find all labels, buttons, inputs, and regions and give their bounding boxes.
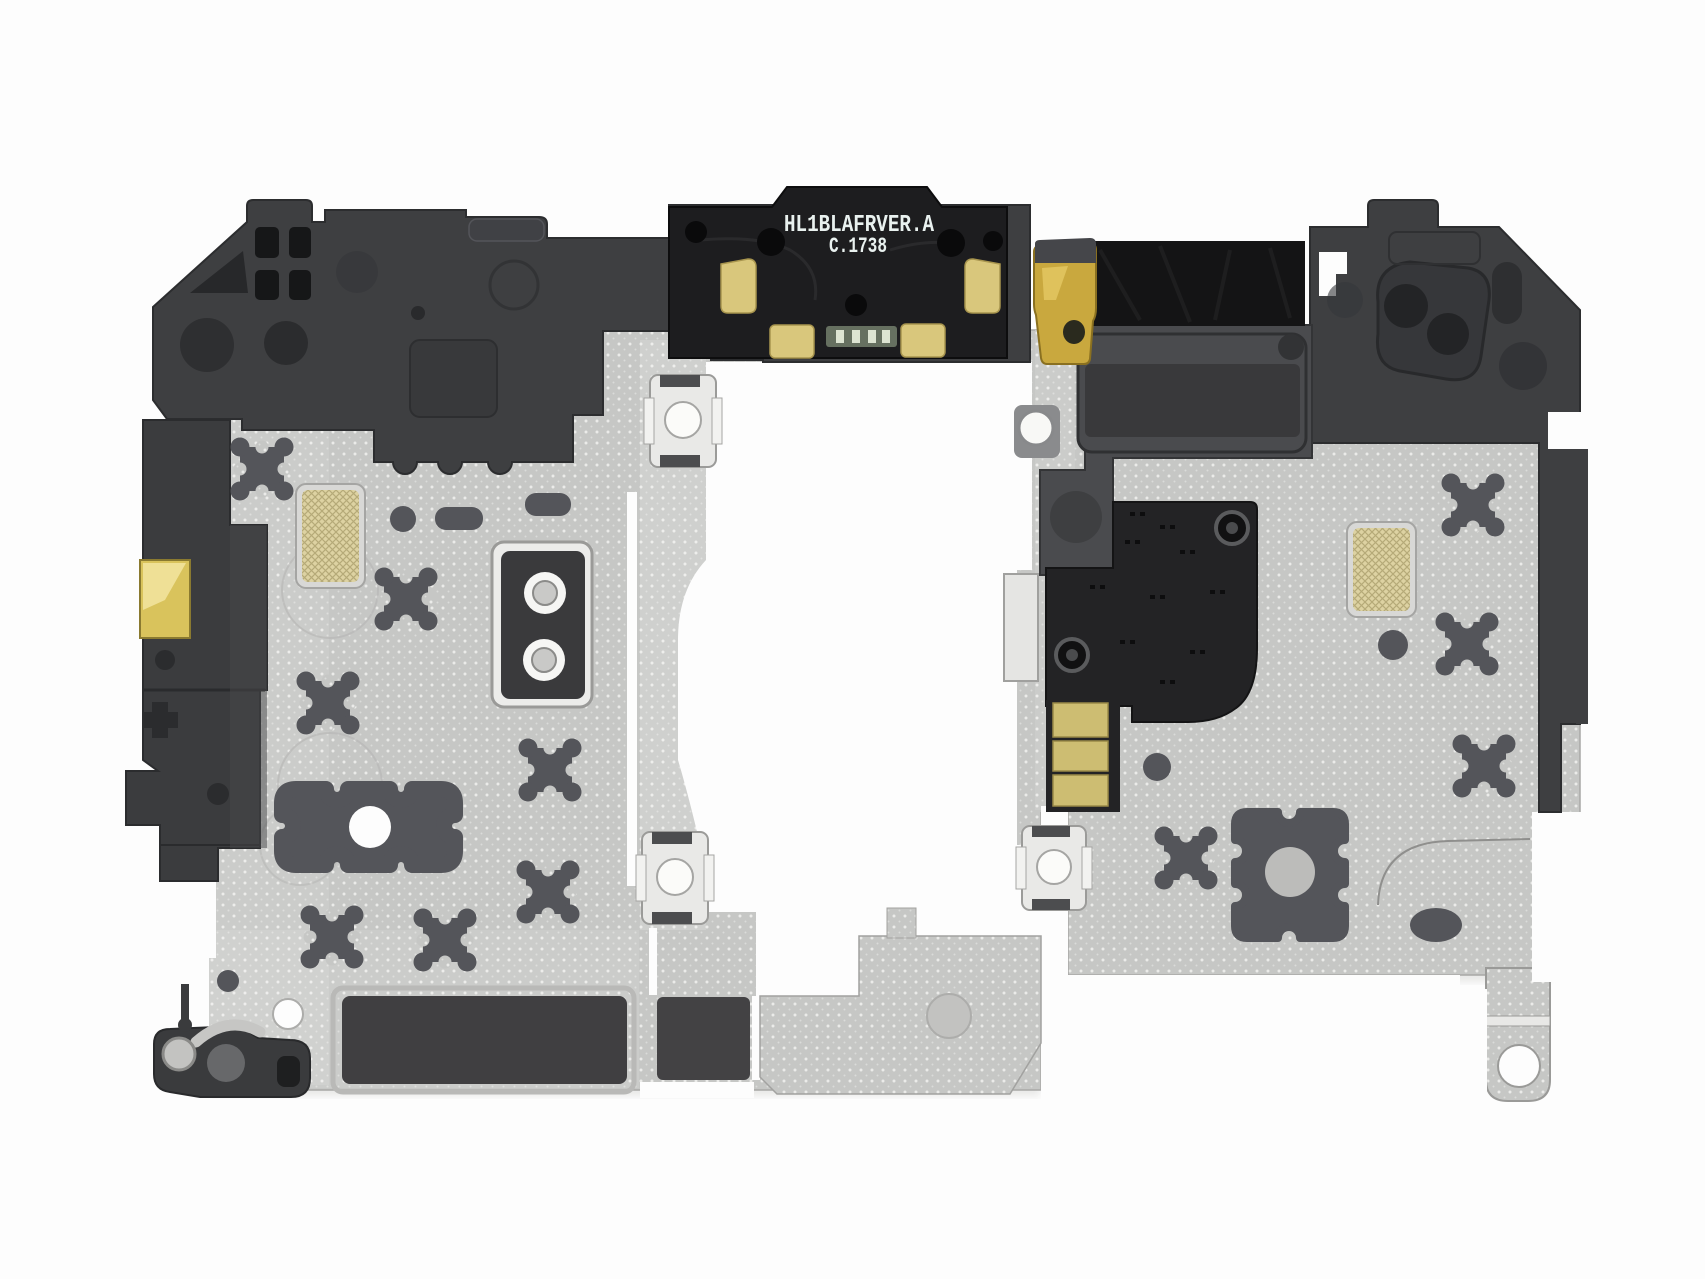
svg-text:C.1738: C.1738 bbox=[829, 234, 887, 259]
